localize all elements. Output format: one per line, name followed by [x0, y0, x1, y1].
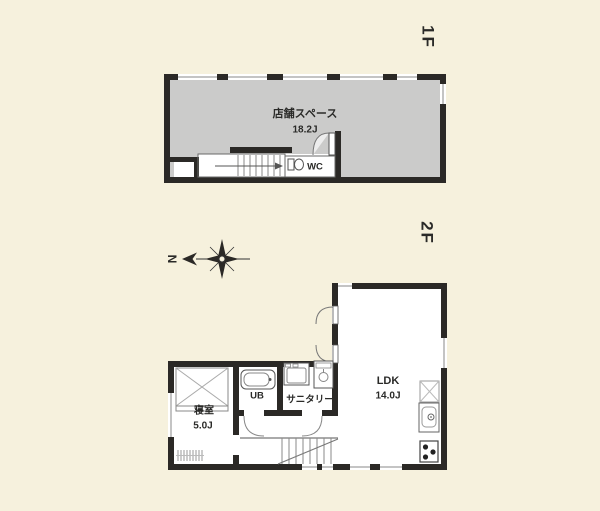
ub-label: UB [250, 391, 264, 402]
refrigerator-icon [420, 381, 439, 402]
floor-label-2f: 2F [418, 221, 437, 245]
floorplan-canvas: 1F [0, 0, 600, 511]
wc-label: WC [307, 162, 323, 173]
floor-label-1f: 1F [419, 25, 438, 49]
plan-1f: 店舗スペース 18.2J WC [164, 74, 446, 183]
sanitary-label: サニタリー [286, 394, 334, 406]
stove-icon [420, 441, 438, 462]
north-label: N [165, 255, 179, 264]
entry-notch [174, 162, 194, 177]
windows-1f-top [178, 74, 417, 80]
bedroom-area: 5.0J [193, 421, 212, 432]
ldk-name: LDK [377, 375, 400, 387]
bedroom-name: 寝室 [194, 404, 214, 417]
shop-name: 店舗スペース [273, 106, 338, 120]
shop-area: 18.2J [292, 125, 317, 136]
kitchen-sink-icon [419, 403, 439, 432]
vanity-sink-icon [314, 361, 333, 388]
bathtub-icon [241, 370, 275, 389]
washing-machine-icon [284, 363, 309, 385]
floorplan-drawing: 1F [0, 0, 600, 511]
toilet-icon [288, 159, 304, 170]
ldk-area: 14.0J [375, 391, 400, 402]
window-1f-right [440, 84, 446, 104]
